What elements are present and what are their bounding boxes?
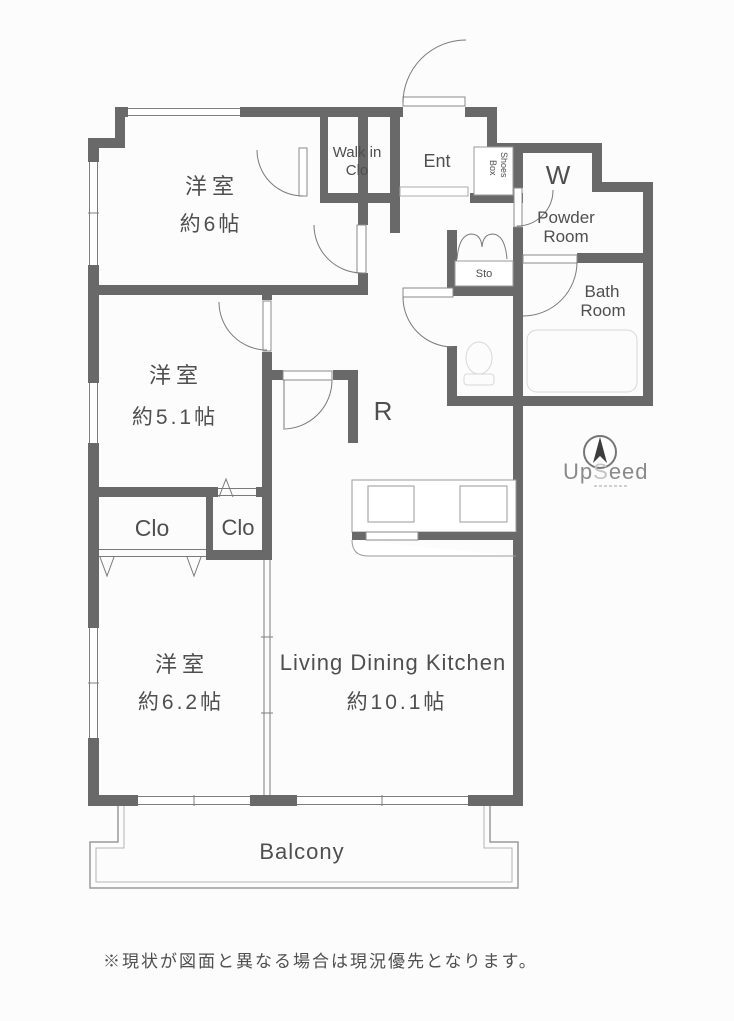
window bbox=[88, 383, 99, 443]
wall-segment bbox=[577, 253, 653, 263]
window bbox=[128, 107, 240, 117]
kitchen-sink bbox=[368, 486, 414, 522]
entrance-door bbox=[403, 40, 466, 106]
powder-room-label-line2: Room bbox=[543, 227, 588, 246]
bedroom1-name-label: 洋室 bbox=[185, 174, 239, 199]
logo-text: UpSeed bbox=[563, 459, 649, 484]
bathtub bbox=[527, 330, 637, 392]
wall-segment bbox=[206, 550, 272, 560]
wall-segment bbox=[643, 182, 653, 406]
wall-segment bbox=[250, 795, 297, 806]
wall-segment bbox=[513, 396, 653, 406]
balcony-label: Balcony bbox=[259, 839, 344, 864]
bath-room-label-line1: Bath bbox=[585, 282, 620, 301]
wall-segment bbox=[88, 795, 138, 806]
bath-door bbox=[523, 255, 577, 316]
wall-segment bbox=[320, 193, 400, 203]
washer-label: W bbox=[546, 160, 571, 190]
bedroom2-name-label: 洋室 bbox=[149, 363, 203, 388]
closet-left-folding-door bbox=[99, 550, 206, 577]
powder-room-label-line1: Powder bbox=[537, 208, 595, 227]
bath-room-label-line2: Room bbox=[580, 301, 625, 320]
ldk-name-label: Living Dining Kitchen bbox=[280, 650, 506, 675]
storage-bifold-door bbox=[457, 234, 507, 259]
walkin-closet-label-line2: Clo bbox=[346, 162, 369, 179]
window bbox=[138, 795, 250, 806]
wc-door bbox=[403, 288, 453, 347]
kitchen-stove bbox=[460, 486, 507, 522]
kitchen-counter bbox=[352, 480, 516, 556]
bedroom1-door bbox=[314, 225, 366, 273]
refrigerator-label: R bbox=[374, 396, 393, 426]
bedroom3-name-label: 洋室 bbox=[155, 652, 209, 677]
storage-label: Sto bbox=[476, 268, 493, 280]
bedroom3-size-label: 約6.2帖 bbox=[138, 691, 224, 714]
toilet bbox=[464, 342, 494, 385]
wall-segment bbox=[256, 487, 272, 497]
wall-segment bbox=[447, 396, 523, 406]
entrance-label: Ent bbox=[423, 151, 450, 171]
wall-segment bbox=[455, 286, 513, 296]
upseed-logo: UpSeed bbox=[563, 436, 649, 486]
bedroom2-door bbox=[219, 301, 271, 351]
wall-segment bbox=[320, 117, 328, 197]
floorplan-canvas: UpSeed 洋室 約6帖 Walk in Clo Ent Shoes Box … bbox=[0, 0, 734, 1021]
wall-segment bbox=[262, 285, 272, 300]
wall-segment bbox=[348, 373, 358, 443]
shoes-box-label-line1: Shoes bbox=[499, 152, 509, 178]
closet-right-folding-door bbox=[218, 479, 256, 497]
walkin-closet-label-line1: Walk in bbox=[333, 144, 382, 161]
disclaimer-text: ※現状が図面と異なる場合は現況優先となります。 bbox=[103, 952, 538, 971]
wall-segment bbox=[262, 352, 272, 560]
ldk-size-label: 約10.1帖 bbox=[347, 691, 448, 714]
window bbox=[297, 795, 468, 806]
wall-segment bbox=[487, 107, 497, 153]
window bbox=[88, 162, 99, 265]
entrance-step bbox=[400, 187, 468, 196]
floorplan-page: UpSeed 洋室 約6帖 Walk in Clo Ent Shoes Box … bbox=[0, 0, 734, 1021]
wall-segment bbox=[390, 117, 400, 233]
wall-segment bbox=[88, 487, 218, 497]
ldk-door bbox=[283, 371, 332, 429]
shoes-box-label-line2: Box bbox=[488, 160, 498, 176]
sliding-partition bbox=[261, 560, 273, 795]
bedroom2-size-label: 約5.1帖 bbox=[132, 406, 218, 429]
wall-segment bbox=[513, 143, 523, 188]
wall-segment bbox=[206, 495, 213, 552]
window bbox=[88, 628, 99, 738]
walkin-closet-door bbox=[257, 148, 307, 196]
bedroom1-size-label: 約6帖 bbox=[180, 213, 243, 236]
closet-right-label: Clo bbox=[221, 515, 254, 540]
closet-left-label: Clo bbox=[135, 515, 170, 541]
wall-segment bbox=[88, 285, 368, 295]
wall-segment bbox=[358, 273, 368, 295]
